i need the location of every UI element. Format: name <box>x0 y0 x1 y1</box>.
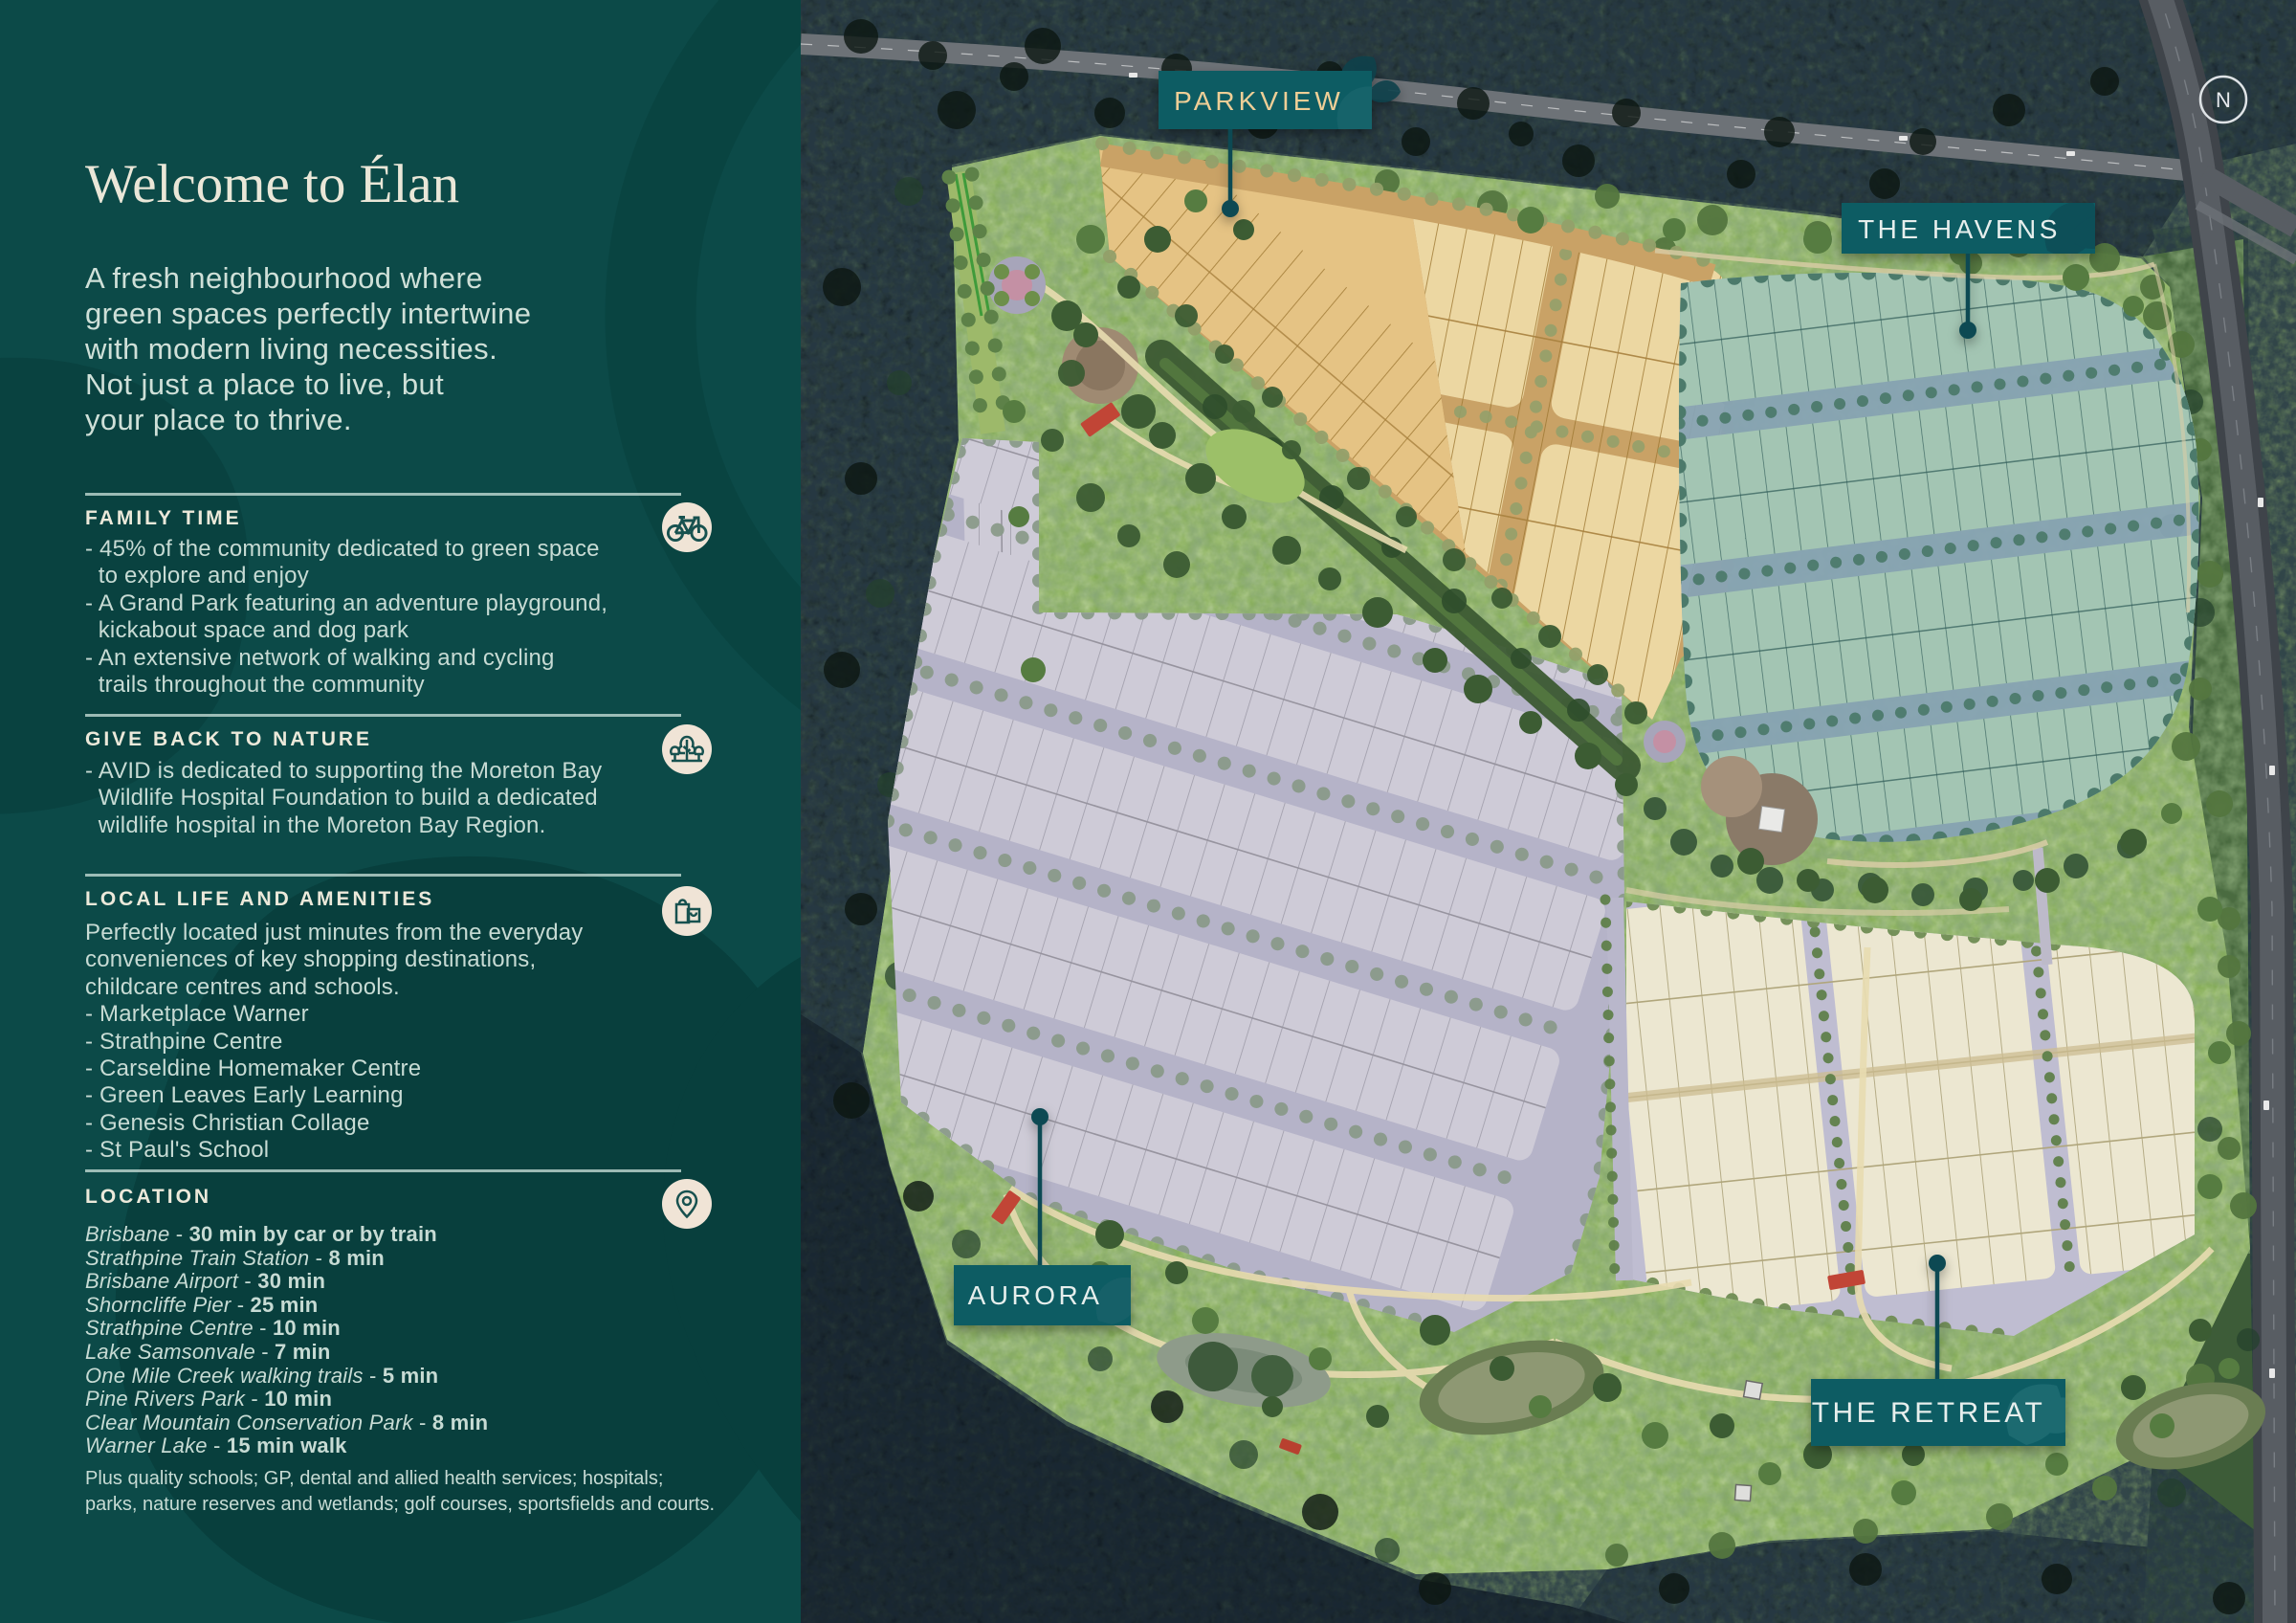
svg-text:AURORA: AURORA <box>968 1280 1103 1310</box>
svg-text:THE RETREAT: THE RETREAT <box>1812 1397 2046 1429</box>
svg-text:PARKVIEW: PARKVIEW <box>1174 86 1344 116</box>
svg-text:N: N <box>2216 88 2231 112</box>
svg-text:THE HAVENS: THE HAVENS <box>1858 214 2061 244</box>
